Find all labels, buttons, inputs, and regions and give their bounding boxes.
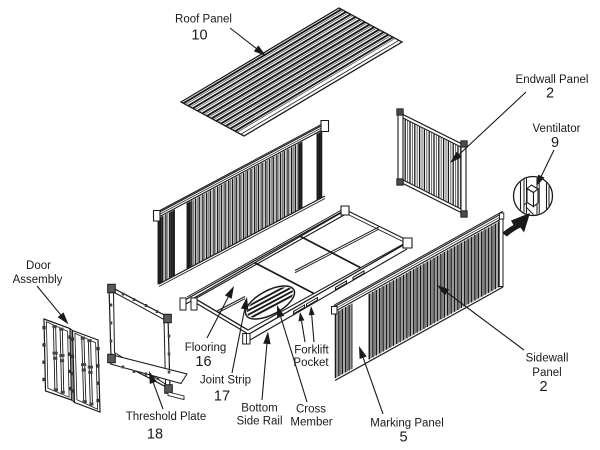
svg-text:Sidewall: Sidewall [526,353,569,365]
svg-text:Endwall Panel: Endwall Panel [516,74,589,86]
svg-text:5: 5 [399,430,407,446]
svg-text:Cross: Cross [296,404,326,416]
svg-text:10: 10 [191,28,207,44]
svg-text:Panel: Panel [532,367,561,379]
svg-text:Joint Strip: Joint Strip [200,375,251,387]
svg-text:2: 2 [539,379,547,395]
svg-text:Threshold Plate: Threshold Plate [126,411,207,423]
svg-text:16: 16 [195,354,211,370]
svg-text:Assembly: Assembly [13,274,63,286]
svg-text:Pocket: Pocket [293,357,329,369]
svg-text:Bottom: Bottom [241,403,277,415]
svg-text:Door: Door [26,260,51,272]
svg-text:2: 2 [546,86,554,102]
svg-text:Member: Member [290,417,332,429]
svg-text:Side Rail: Side Rail [236,416,282,428]
svg-text:Flooring: Flooring [185,342,227,354]
svg-text:Roof Panel: Roof Panel [175,14,232,26]
svg-text:Forklift: Forklift [294,345,329,357]
svg-text:17: 17 [214,389,230,405]
svg-text:Ventilator: Ventilator [533,123,581,135]
svg-text:Marking Panel: Marking Panel [370,418,444,430]
svg-text:18: 18 [147,427,163,443]
svg-text:9: 9 [551,135,559,151]
